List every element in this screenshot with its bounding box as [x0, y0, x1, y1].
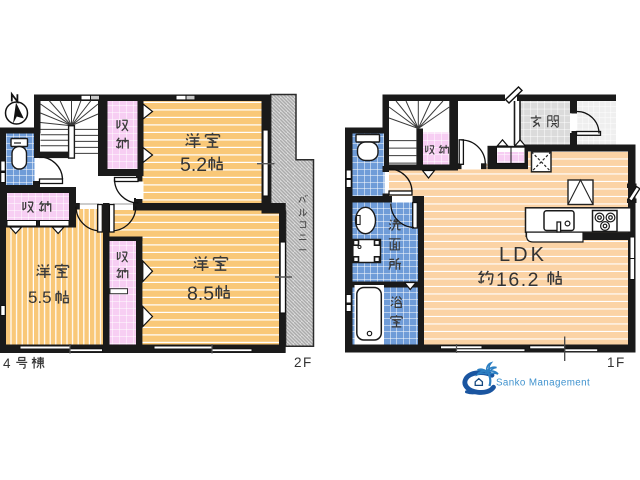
- svg-text:Sanko Management: Sanko Management: [496, 378, 590, 389]
- svg-text:5.2: 5.2: [180, 154, 207, 176]
- svg-text:4: 4: [3, 356, 11, 371]
- svg-text:LDK: LDK: [499, 244, 547, 266]
- svg-text:16.2: 16.2: [496, 269, 540, 291]
- svg-text:1F: 1F: [607, 355, 626, 370]
- svg-text:2F: 2F: [294, 355, 313, 370]
- svg-text:8.5: 8.5: [187, 283, 214, 305]
- svg-text:5.5: 5.5: [28, 288, 52, 307]
